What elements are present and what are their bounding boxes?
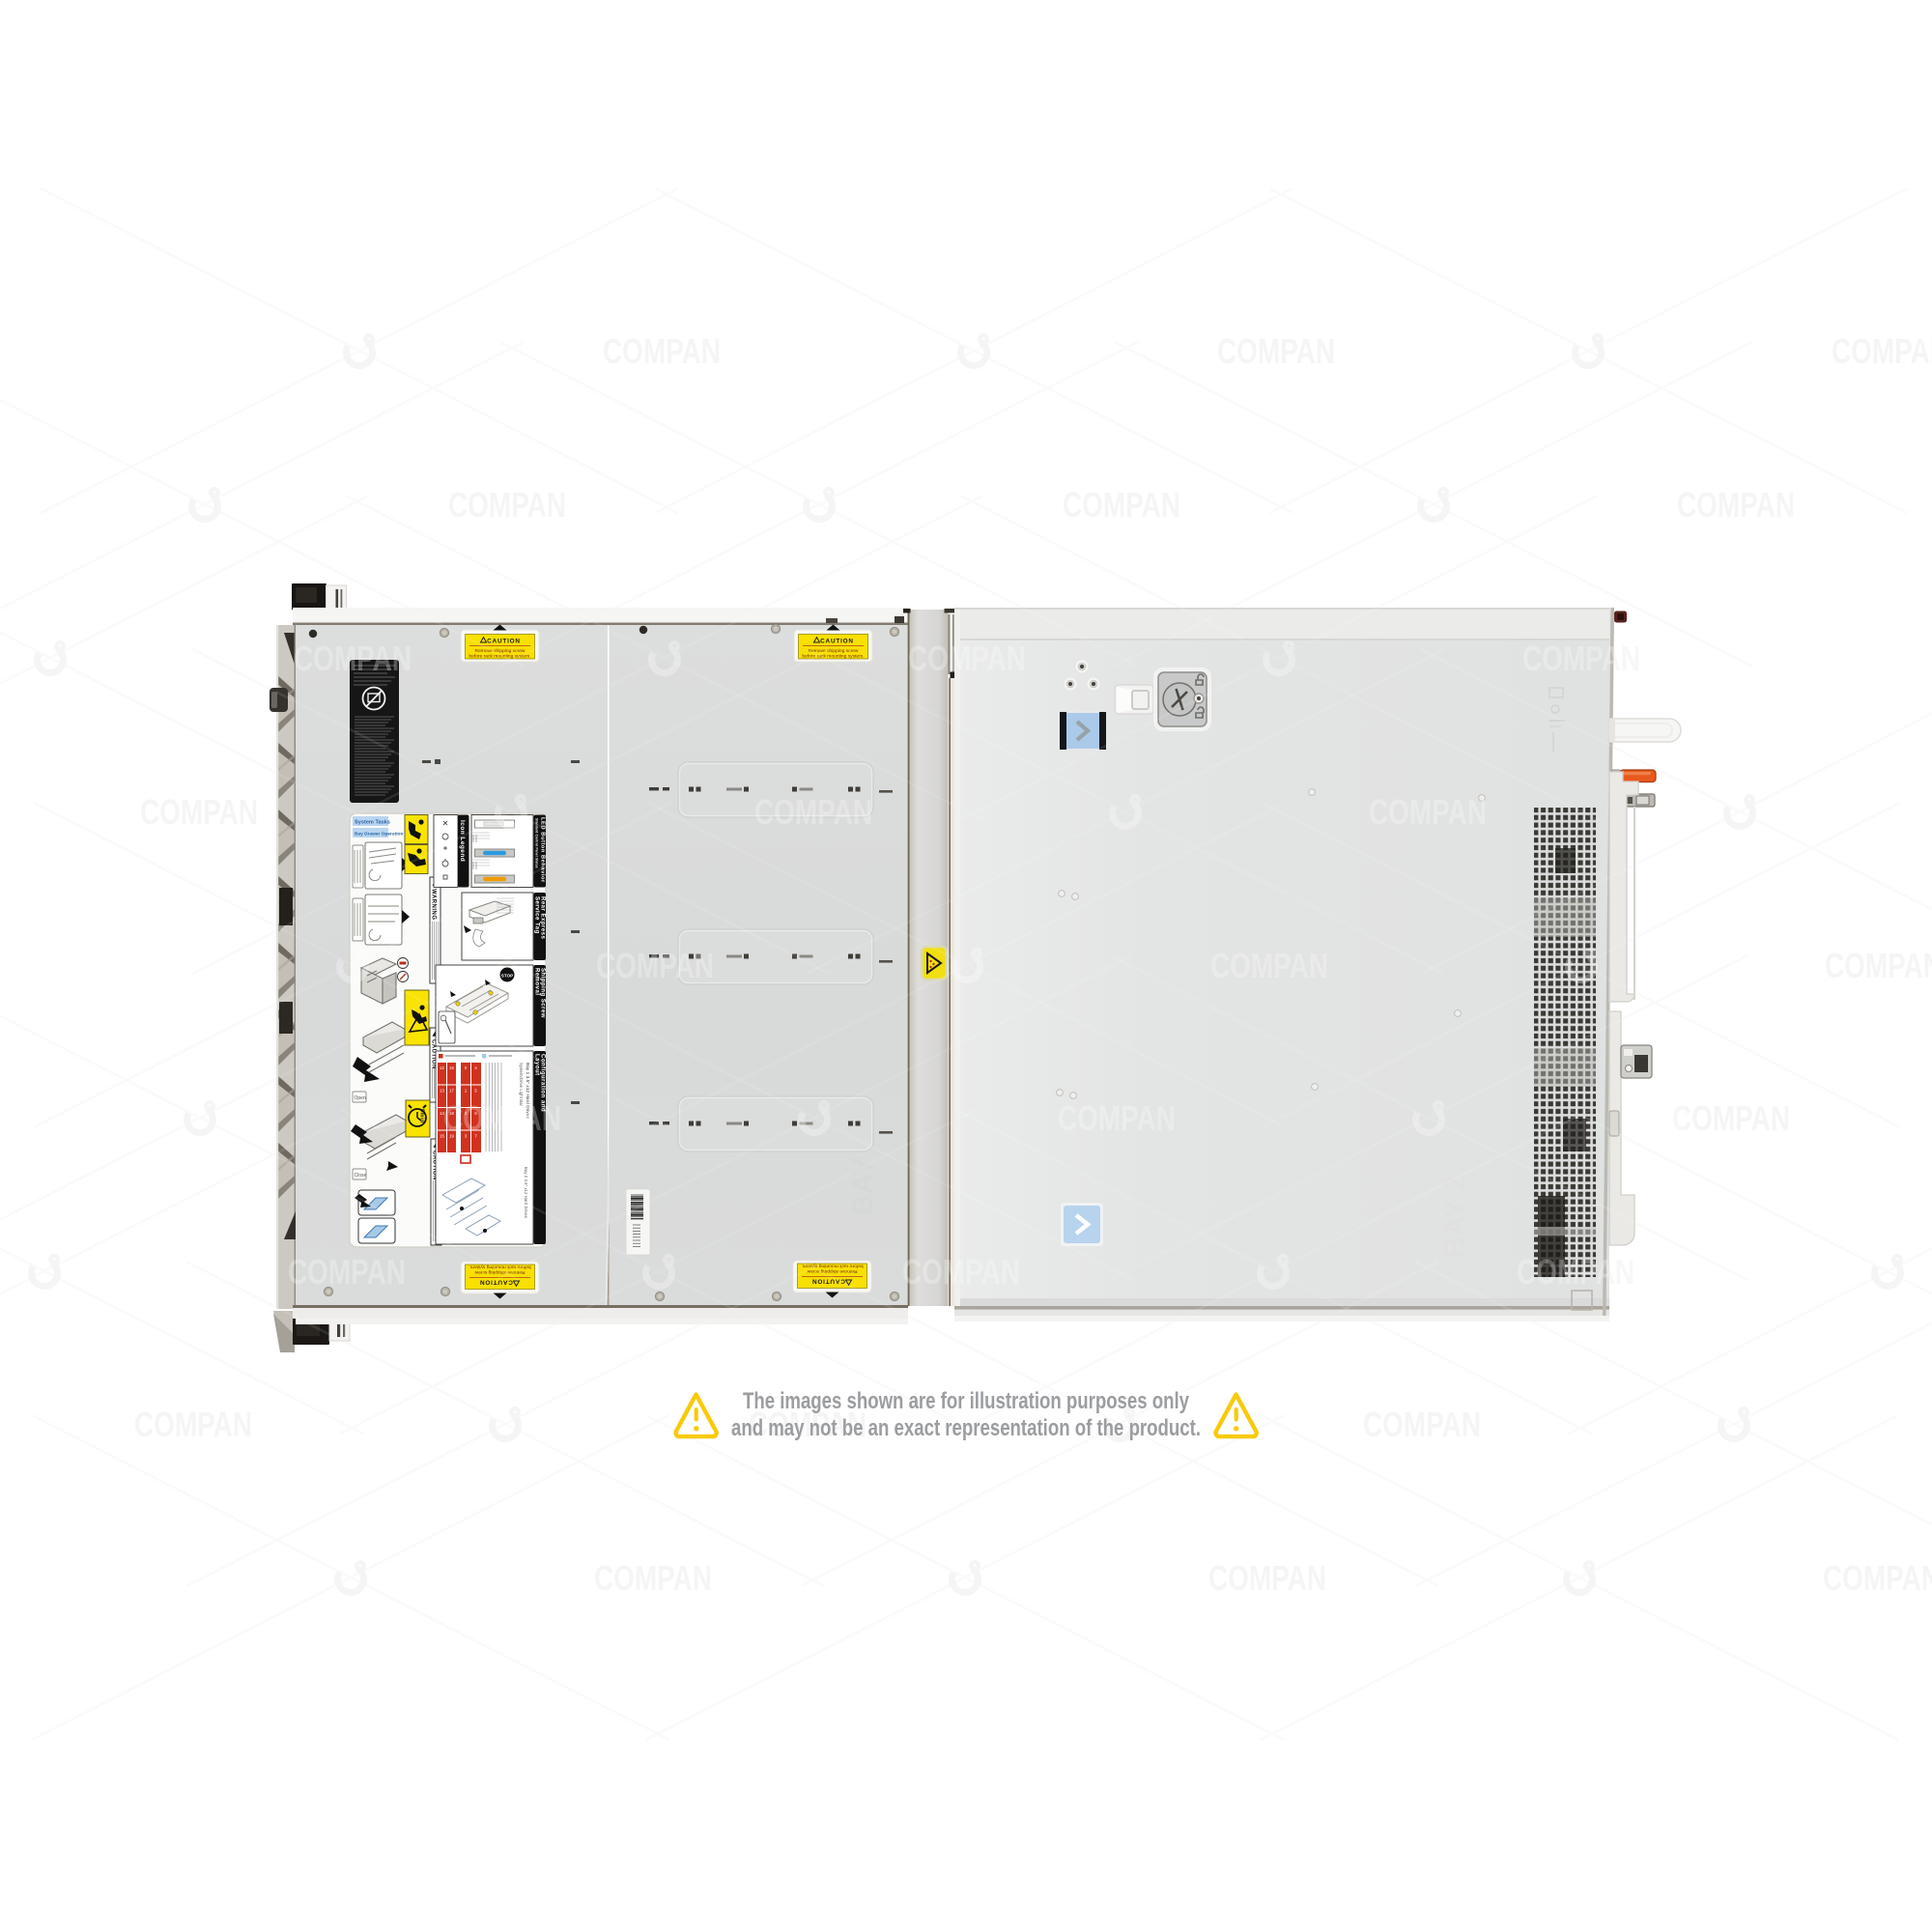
- svg-text:COMPAN: COMPAN: [1522, 639, 1640, 678]
- svg-text:17: 17: [449, 1089, 454, 1094]
- svg-text:BAY 2: BAY 2: [1439, 1176, 1471, 1258]
- svg-text:Open: Open: [355, 1095, 366, 1101]
- svg-text:COMPAN: COMPAN: [288, 1252, 406, 1292]
- svg-text:COMPAN: COMPAN: [603, 331, 721, 371]
- svg-text:COMPAN: COMPAN: [1058, 1098, 1176, 1138]
- svg-text:WARNING: WARNING: [431, 889, 437, 921]
- svg-text:COMPAN: COMPAN: [1832, 331, 1932, 371]
- svg-text:COMPAN: COMPAN: [448, 485, 566, 525]
- svg-text:COMPAN: COMPAN: [1369, 792, 1487, 832]
- svg-text:COMPAN: COMPAN: [1210, 946, 1328, 985]
- svg-text:COMPAN: COMPAN: [1063, 485, 1180, 525]
- svg-text:13: 13: [440, 1089, 444, 1094]
- svg-text:COMPAN: COMPAN: [443, 1098, 561, 1138]
- svg-text:COMPAN: COMPAN: [140, 792, 258, 832]
- svg-text:and may not be an exact repres: and may not be an exact representation o…: [731, 1415, 1201, 1441]
- svg-text:COMPAN: COMPAN: [594, 1558, 712, 1598]
- svg-text:16: 16: [449, 1065, 454, 1070]
- svg-text:CAUTION: CAUTION: [820, 639, 854, 645]
- svg-text:COMPAN: COMPAN: [1672, 1098, 1790, 1138]
- svg-text:The images shown are for illus: The images shown are for illustration pu…: [743, 1388, 1189, 1414]
- svg-text:Icon Legend: Icon Legend: [459, 820, 466, 862]
- svg-text:12: 12: [440, 1065, 444, 1070]
- svg-text:COMPAN: COMPAN: [1208, 1558, 1326, 1598]
- svg-text:COMPAN: COMPAN: [908, 639, 1026, 678]
- svg-text:COMPAN: COMPAN: [1363, 1405, 1481, 1444]
- svg-text:Close: Close: [355, 1173, 367, 1179]
- svg-text:COMPAN: COMPAN: [294, 639, 412, 678]
- svg-text:COMPAN: COMPAN: [134, 1405, 252, 1444]
- svg-text:Bay 2 3.5" x12 Hard Drives: Bay 2 3.5" x12 Hard Drives: [524, 1167, 528, 1218]
- svg-text:STOP: STOP: [501, 974, 513, 979]
- svg-text:COMPAN: COMPAN: [596, 946, 714, 985]
- svg-text:COMPAN: COMPAN: [1517, 1252, 1634, 1292]
- svg-text:COMPAN: COMPAN: [754, 792, 872, 832]
- svg-text:5min: 5min: [419, 1109, 425, 1123]
- svg-text:COMPAN: COMPAN: [1823, 1558, 1932, 1598]
- svg-text:COMPAN: COMPAN: [902, 1252, 1020, 1292]
- svg-text:COMPAN: COMPAN: [1677, 485, 1795, 525]
- svg-text:COMPAN: COMPAN: [1217, 331, 1335, 371]
- svg-text:System Tasks: System Tasks: [355, 820, 390, 826]
- svg-text:Bay Drawer Operation: Bay Drawer Operation: [355, 832, 403, 838]
- svg-text:CAUTION: CAUTION: [487, 639, 521, 645]
- svg-text:COMPAN: COMPAN: [1825, 946, 1932, 985]
- svg-text:Service Tag: Service Tag: [534, 896, 540, 934]
- svg-text:Removal: Removal: [534, 968, 540, 996]
- svg-text:Remove shipping screw: Remove shipping screw: [475, 648, 526, 654]
